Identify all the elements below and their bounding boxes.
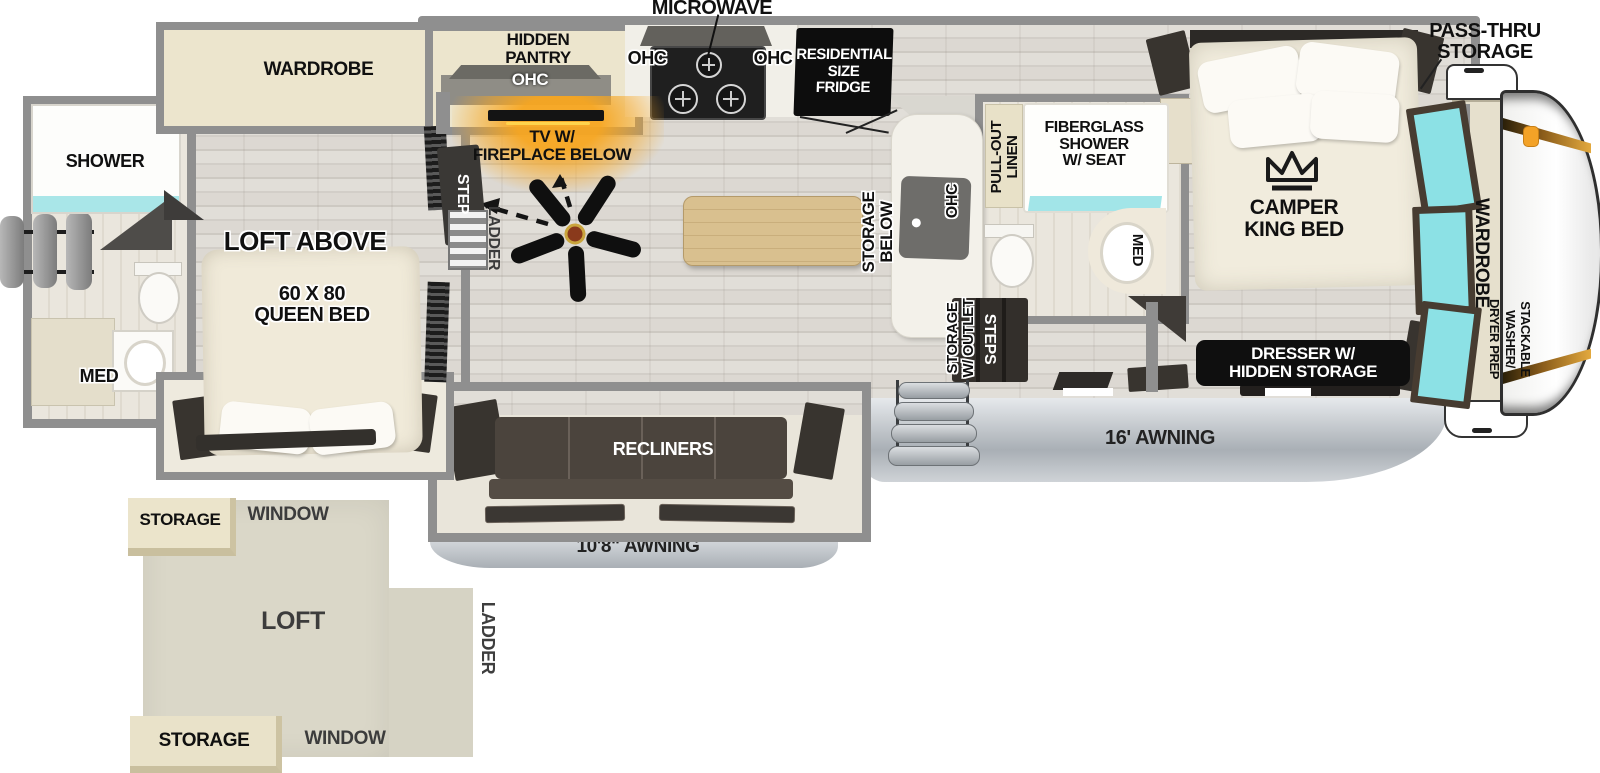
mid-med-cabinet-label: MED	[1129, 227, 1145, 273]
steps-label: STEPS	[980, 308, 998, 370]
bedroom-wall-stub	[1146, 302, 1158, 392]
rv-floorplan-canvas: SHOWER MED WARDROBE LOFT ABOVE 60 X 80 Q…	[0, 0, 1600, 773]
ladder-rung	[66, 212, 92, 290]
rear-wardrobe-label: WARDROBE	[226, 58, 411, 82]
camper-king-bed-label: CAMPER KING BED	[1220, 194, 1368, 244]
mid-vanity	[1088, 208, 1166, 294]
fiberglass-shower-label: FIBERGLASS SHOWER W/ SEAT	[1027, 114, 1161, 176]
pantry-ohc-label: OHC	[490, 70, 570, 90]
front-window	[1412, 205, 1476, 315]
recliner-footrest	[659, 504, 795, 523]
loft-ladder-label: LADDER	[478, 591, 498, 685]
cap-light-icon	[1523, 126, 1539, 147]
rear-toilet-bowl-icon	[138, 272, 180, 324]
window-blind	[424, 282, 449, 383]
interior-ladder-label: LADDER	[484, 197, 502, 279]
rear-med-cabinet-label: MED	[62, 366, 136, 386]
dining-table	[683, 196, 863, 266]
entry-step	[891, 424, 977, 443]
loft-window-bottom-label: WINDOW	[285, 728, 405, 750]
bedroom-bottom-window	[1127, 364, 1189, 392]
bay-handle	[1464, 68, 1484, 73]
pillow	[308, 400, 397, 456]
recliners-label: RECLINERS	[592, 438, 734, 460]
loft-window-top-label: WINDOW	[228, 504, 348, 526]
burner-icon	[668, 84, 698, 114]
recliner-divider	[568, 417, 570, 479]
tv-fireplace-label: TV W/ FIREPLACE BELOW	[440, 126, 664, 166]
front-window	[1410, 301, 1482, 410]
storage-below-label: STORAGE BELOW	[858, 189, 898, 275]
ohc-right-label: OHC	[748, 48, 798, 68]
step-label: STEP	[452, 164, 472, 224]
loft-label: LOFT	[246, 606, 340, 636]
loft-storage-top-label: STORAGE	[130, 510, 230, 530]
door-threshold	[1265, 388, 1311, 396]
dresser-label: DRESSER W/ HIDDEN STORAGE	[1229, 345, 1377, 381]
ladder-rung	[33, 214, 57, 288]
entry-step	[888, 446, 980, 466]
dresser-label-box: DRESSER W/ HIDDEN STORAGE	[1196, 340, 1410, 386]
fridge-label: RESIDENTIAL SIZE FRIDGE	[795, 47, 892, 97]
recliner-seat-bar	[489, 479, 793, 499]
queen-bed-icon	[201, 246, 423, 456]
stackable-washer-label: STACKABLE WASHER/ DRYER PREP	[1493, 277, 1527, 401]
ladder-rung	[0, 216, 24, 288]
storage-outlet-label: STORAGE W/ OUTLET	[943, 291, 979, 385]
mid-sink-icon	[1100, 222, 1154, 284]
entry-step	[894, 402, 974, 421]
loft-above-label: LOFT ABOVE	[202, 226, 408, 258]
step-divider	[1002, 298, 1006, 382]
microwave-label: MICROWAVE	[642, 0, 782, 16]
pull-out-linen-label: PULL-OUT LINEN	[987, 108, 1023, 206]
entry-steps-icon	[888, 378, 982, 474]
fireplace-flame-line	[506, 122, 590, 125]
tv-icon	[488, 110, 604, 121]
pillow	[1309, 90, 1400, 143]
door-threshold	[1063, 388, 1113, 396]
loft-storage-bottom-label: STORAGE	[132, 730, 276, 752]
rear-bath-cabinet	[31, 318, 115, 406]
slide-floor-strip	[437, 391, 862, 415]
mid-toilet-bowl-icon	[990, 234, 1034, 288]
awning-16-label: 16' AWNING	[1080, 426, 1240, 450]
queen-bed-label: 60 X 80 QUEEN BED	[226, 282, 398, 328]
pass-thru-storage-label: PASS-THRU STORAGE	[1408, 20, 1562, 64]
rear-shower-label: SHOWER	[42, 150, 168, 172]
range-hood	[640, 26, 772, 46]
hidden-pantry-label: HIDDEN PANTRY	[468, 30, 608, 68]
rear-exterior-ladder-icon	[0, 214, 94, 292]
island-ohc-label: OHC	[944, 177, 962, 225]
pillow	[1227, 93, 1323, 150]
burner-icon	[716, 84, 746, 114]
crown-icon	[1260, 148, 1324, 192]
recliner-footrest	[485, 504, 625, 523]
faucet-icon	[912, 218, 921, 227]
recliners-slide	[428, 382, 871, 542]
residential-fridge: RESIDENTIAL SIZE FRIDGE	[793, 28, 893, 116]
ohc-left-label: OHC	[622, 48, 672, 68]
bay-handle	[1472, 428, 1492, 433]
